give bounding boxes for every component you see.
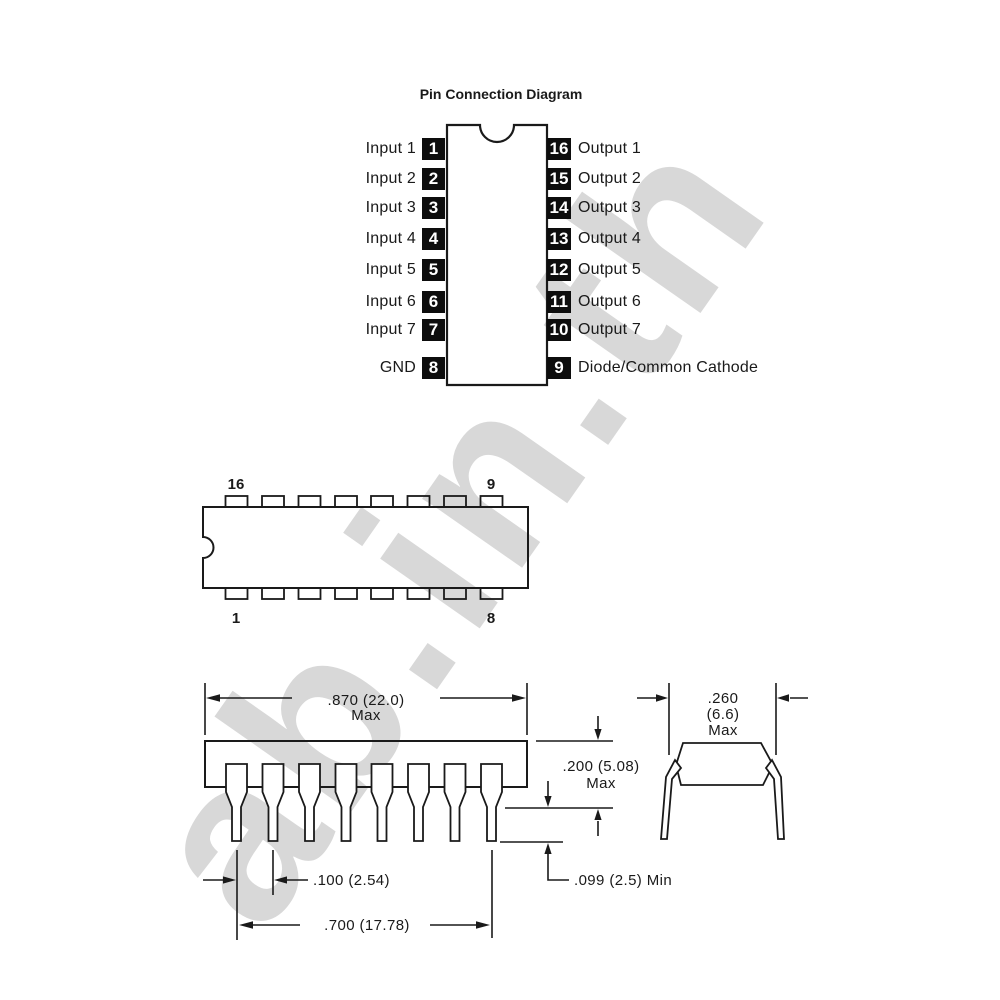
pin-row: Input 4 4 13 Output 4: [0, 228, 1000, 250]
pin-row: Input 1 1 16 Output 1: [0, 138, 1000, 160]
pin-number-left: 4: [422, 228, 445, 250]
pin-number-right: 12: [547, 259, 571, 281]
dim-lead-tip: .099 (2.5) Min: [500, 781, 672, 889]
dim-body-height-qualifier: Max: [586, 775, 616, 792]
dim-row-span-value: .700 (17.78): [324, 917, 410, 934]
package-body-outline: [203, 507, 528, 588]
dim-depth-qualifier: Max: [708, 722, 738, 739]
front-body-outline: [205, 741, 527, 787]
pin-row: Input 5 5 12 Output 5: [0, 259, 1000, 281]
pin-left-label: Input 2: [216, 168, 416, 190]
dim-lead-tip-arrows: [544, 796, 551, 854]
pin-number-right: 11: [547, 291, 571, 313]
package-end-view: .260 (6.6) Max: [637, 683, 808, 839]
dim-lead-pitch-value: .100 (2.54): [313, 872, 390, 889]
dim-depth-value-mm: (6.6): [707, 706, 740, 723]
datasheet-page: ab.in.th 16 9 1 8: [0, 0, 1000, 1000]
pin-number-left: 5: [422, 259, 445, 281]
dim-lead-tip-value: .099 (2.5) Min: [574, 872, 672, 889]
pin-number-left: 6: [422, 291, 445, 313]
dip-body-outline: [447, 125, 547, 385]
pin-left-label: Input 4: [216, 228, 416, 250]
page-title: Pin Connection Diagram: [351, 86, 651, 102]
pkg-pin9-label: 9: [487, 476, 495, 493]
pin-number-right: 9: [547, 357, 571, 379]
pin-right-label: Output 1: [578, 138, 858, 160]
pkg-pin16-label: 16: [228, 476, 245, 493]
pin-row: Input 2 2 15 Output 2: [0, 168, 1000, 190]
pin-number-left: 7: [422, 319, 445, 341]
pin-left-label: GND: [216, 357, 416, 379]
dim-lead-pitch-arrows: [223, 876, 287, 883]
dim-depth-value: .260: [708, 690, 739, 707]
package-pins: [226, 496, 503, 599]
pin-row: Input 3 3 14 Output 3: [0, 197, 1000, 219]
pin-right-label: Output 6: [578, 291, 858, 313]
pin-row: Input 6 6 11 Output 6: [0, 291, 1000, 313]
pkg-pin8-label: 8: [487, 610, 495, 627]
pin-left-label: Input 1: [216, 138, 416, 160]
pin-right-label: Output 3: [578, 197, 858, 219]
pin-left-label: Input 6: [216, 291, 416, 313]
front-leads: [226, 764, 502, 841]
pin-left-label: Input 5: [216, 259, 416, 281]
dim-row-span: .700 (17.78): [239, 850, 492, 938]
pin-right-label: Diode/Common Cathode: [578, 357, 858, 379]
dim-body-height-value: .200 (5.08): [563, 758, 640, 775]
end-body-outline: [676, 743, 773, 785]
pin-row: GND 8 9 Diode/Common Cathode: [0, 357, 1000, 379]
pin-left-label: Input 7: [216, 319, 416, 341]
pin-right-label: Output 2: [578, 168, 858, 190]
pin-number-right: 10: [547, 319, 571, 341]
pin-right-label: Output 4: [578, 228, 858, 250]
pin-number-left: 1: [422, 138, 445, 160]
pin-number-left: 2: [422, 168, 445, 190]
pin-number-left: 3: [422, 197, 445, 219]
dim-body-width-qualifier: Max: [351, 707, 381, 724]
pkg-pin1-label: 1: [232, 610, 240, 627]
pin-right-label: Output 5: [578, 259, 858, 281]
pin-number-right: 14: [547, 197, 571, 219]
dim-body-width: .870 (22.0) Max: [205, 683, 527, 735]
package-front-view: [205, 741, 527, 841]
pin-number-left: 8: [422, 357, 445, 379]
package-top-view: 16 9 1 8: [203, 476, 528, 627]
pin-number-right: 13: [547, 228, 571, 250]
dim-body-height: .200 (5.08) Max: [505, 716, 639, 836]
pin-row: Input 7 7 10 Output 7: [0, 319, 1000, 341]
pin-number-right: 15: [547, 168, 571, 190]
end-view-leads: [661, 760, 784, 839]
pin-number-right: 16: [547, 138, 571, 160]
pin-left-label: Input 3: [216, 197, 416, 219]
pin-right-label: Output 7: [578, 319, 858, 341]
